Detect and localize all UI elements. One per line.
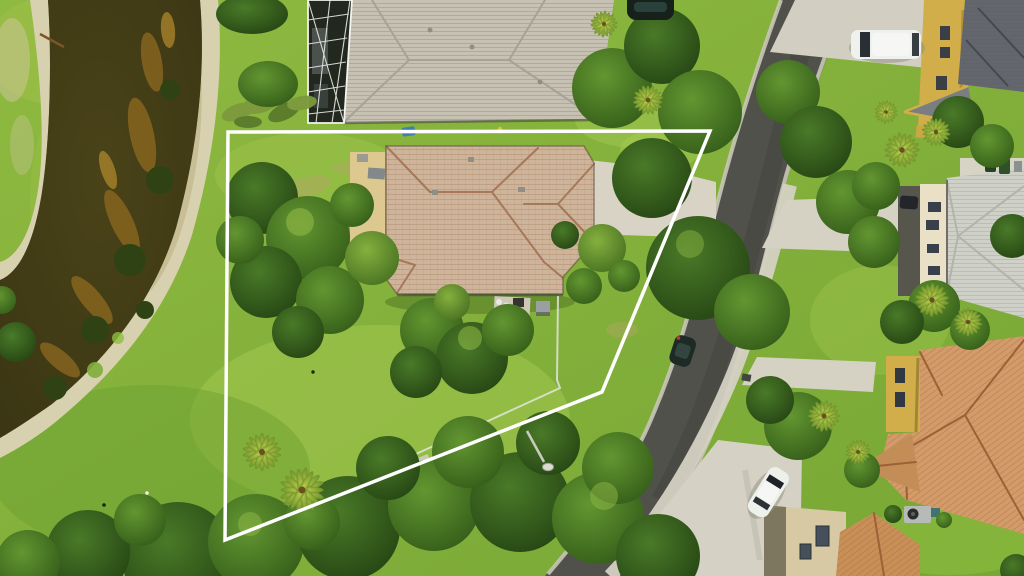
speck	[102, 503, 106, 507]
dark-car-top	[627, 0, 674, 20]
speck	[311, 370, 314, 373]
aerial-photo	[0, 0, 1024, 576]
white-suv	[849, 30, 925, 63]
neighbor-house	[308, 0, 614, 137]
speck	[145, 491, 149, 495]
